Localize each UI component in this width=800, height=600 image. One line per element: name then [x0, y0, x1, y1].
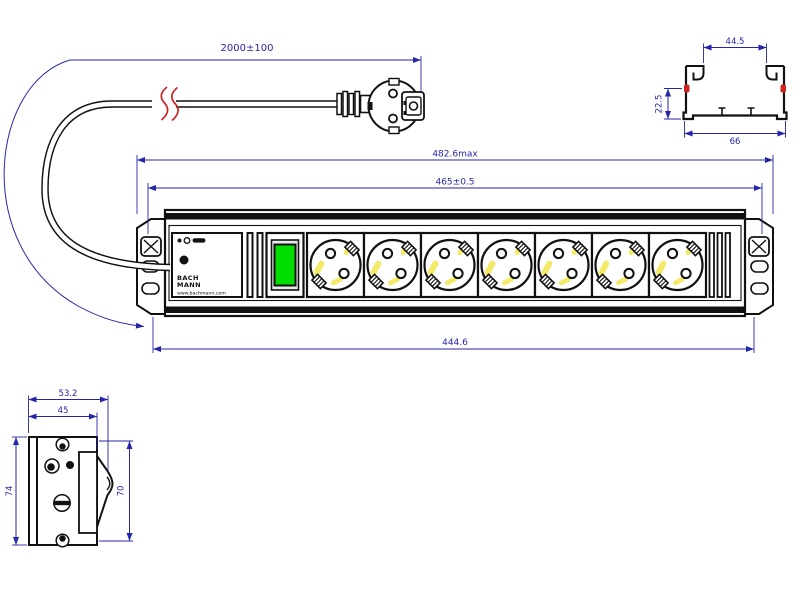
schuko-socket [307, 233, 364, 297]
rating-bar-icon [193, 238, 206, 242]
rating-circle-icon [184, 238, 190, 244]
slot-hole [751, 261, 768, 272]
housing-profile-section: 44.5 22.5 66 [655, 37, 787, 147]
profile-dimensions: 44.5 22.5 66 [655, 37, 786, 147]
plug-screw-hole [389, 115, 397, 123]
svg-text:2000±100: 2000±100 [221, 43, 274, 54]
dim-height-right: 70 [99, 441, 133, 541]
schuko-socket [592, 233, 649, 297]
profile-hook-left [686, 66, 704, 80]
svg-text:66: 66 [730, 137, 741, 147]
rating-dot-icon [178, 239, 182, 243]
divider-bar [718, 233, 723, 297]
clip-mark-red [781, 85, 787, 93]
schuko-socket [478, 233, 535, 297]
svg-text:22.5: 22.5 [655, 95, 665, 114]
svg-text:45: 45 [58, 406, 69, 416]
profile-outline [684, 66, 787, 119]
socket-wedge [97, 456, 113, 527]
plug-notch [389, 79, 399, 86]
profile-tabs [719, 108, 755, 116]
divider-bar [258, 233, 263, 297]
wedge-nub [107, 477, 110, 490]
dim-housing-length: 444.6 [153, 317, 754, 353]
divider-bar [710, 233, 715, 297]
svg-text:482.6max: 482.6max [432, 150, 478, 160]
mounting-bracket-right [745, 219, 773, 314]
brand-text: MANN [177, 281, 201, 289]
svg-text:53.2: 53.2 [59, 389, 78, 399]
svg-text:74: 74 [5, 486, 15, 497]
schuko-plug-top-view [337, 79, 424, 134]
plug-screw-hole [389, 90, 397, 98]
cable-break-marks [161, 87, 178, 121]
svg-text:70: 70 [117, 486, 127, 497]
schuko-socket [649, 233, 706, 297]
divider-bar [726, 233, 731, 297]
bottom-rail [165, 307, 745, 314]
profile-hook-right [767, 66, 785, 80]
clip-mark-red [684, 85, 690, 93]
hole-small [66, 461, 74, 469]
strain-relief-rib [337, 94, 342, 115]
schuko-socket [535, 233, 592, 297]
front-view-power-strip: BACH MANN www.bachmann.com [137, 210, 773, 316]
schuko-socket [364, 233, 421, 297]
strain-relief-rib [355, 92, 360, 117]
switch-rocker-green [275, 245, 296, 286]
slot-hole [142, 283, 159, 294]
technical-drawing-canvas: BACH MANN www.bachmann.com [0, 0, 800, 600]
power-switch [267, 233, 304, 297]
strain-relief-rib [343, 92, 348, 117]
brand-website: www.bachmann.com [177, 291, 226, 297]
divider-bar [248, 233, 253, 297]
socket-bed [79, 452, 97, 533]
svg-text:44.5: 44.5 [726, 37, 745, 47]
brand-label-panel: BACH MANN www.bachmann.com [172, 233, 242, 297]
plug-notch [389, 127, 399, 134]
cable-anchor [368, 102, 373, 110]
bracket-plate-edge [29, 437, 37, 545]
schuko-socket [421, 233, 478, 297]
svg-text:465±0.5: 465±0.5 [435, 178, 474, 188]
svg-text:444.6: 444.6 [442, 338, 468, 348]
panel-hole [180, 256, 189, 265]
dim-height-left: 74 [5, 437, 27, 545]
side-view [29, 437, 113, 547]
top-rail [165, 213, 745, 220]
socket-row [307, 233, 706, 297]
slot-hole [751, 283, 768, 294]
strain-relief-rib [349, 94, 354, 115]
